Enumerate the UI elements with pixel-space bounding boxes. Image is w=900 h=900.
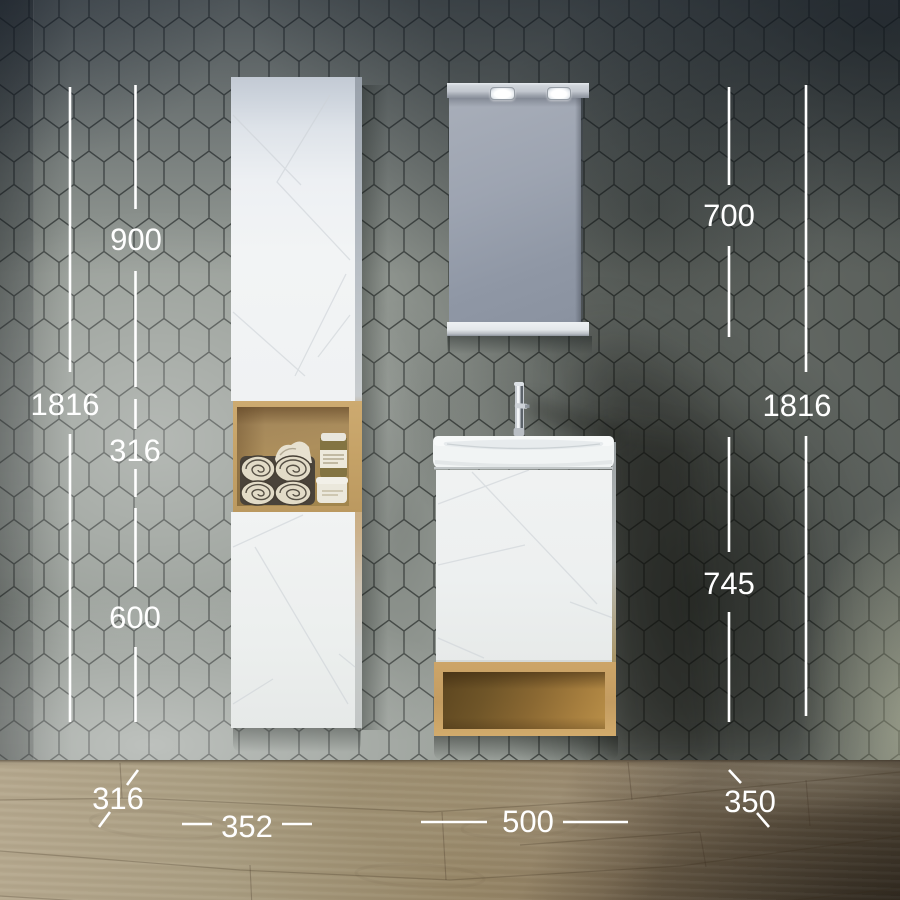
svg-text:350: 350 — [724, 784, 776, 819]
svg-text:316: 316 — [109, 433, 161, 468]
svg-text:700: 700 — [703, 198, 755, 233]
svg-text:316: 316 — [92, 781, 144, 816]
svg-text:600: 600 — [109, 600, 161, 635]
svg-text:500: 500 — [502, 804, 554, 839]
svg-text:900: 900 — [110, 222, 162, 257]
svg-text:745: 745 — [703, 566, 755, 601]
svg-text:352: 352 — [221, 809, 273, 844]
svg-text:1816: 1816 — [31, 387, 100, 422]
svg-text:1816: 1816 — [763, 388, 832, 423]
